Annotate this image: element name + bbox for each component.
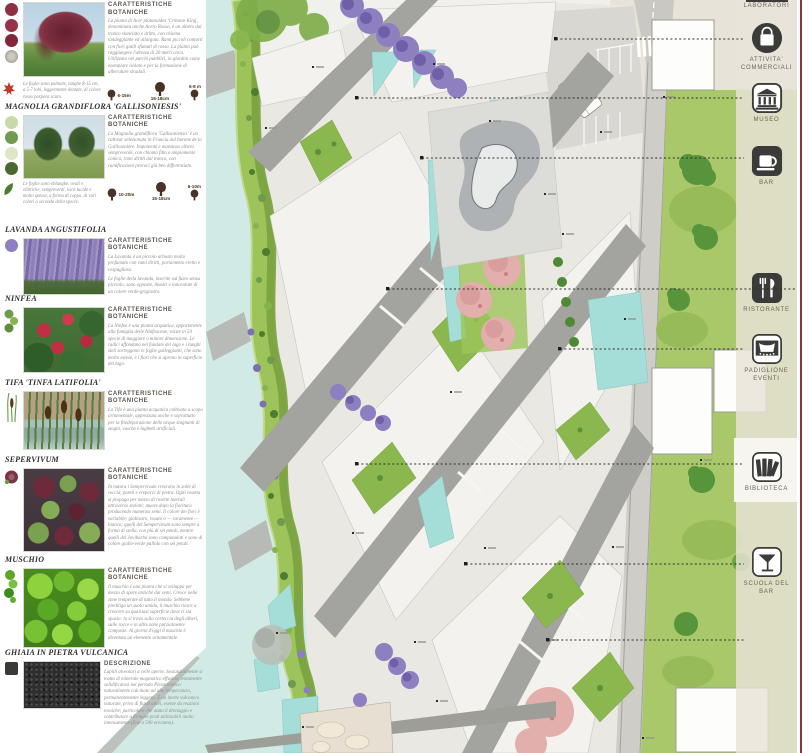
plant-title: LAVANDA ANGUSTIFOLIA — [5, 226, 204, 235]
facility-label: BIBLIOTECA — [745, 485, 788, 493]
facility-label: SCUOLA DEL BAR — [739, 580, 795, 596]
plant-section-sempervivum: SEPERVIVUM CARATTERISTICHE BOTANICHE In … — [3, 456, 204, 552]
sempervivum-photo — [23, 468, 105, 552]
facility-scuola-del-bar: SCUOLA DEL BAR — [736, 546, 797, 596]
tree-size-icon: 15-18cm — [151, 82, 169, 101]
botanical-text: La Tifa è una pianta acquatica coltivata… — [108, 408, 203, 434]
facility-laboratori: LABORATORI — [736, 0, 797, 7]
magnolia-swatches — [3, 115, 20, 179]
red-maple-leaf-icon — [3, 82, 20, 95]
plant-section-lavanda: LAVANDA ANGUSTIFOLIA CARATTERISTICHE BOT… — [3, 226, 204, 299]
coffee-cup-icon — [751, 145, 783, 177]
tree-size-icon: 10-20m — [107, 188, 134, 201]
plant-legend-panel: CARATTERISTICHE BOTANICHE La pianta di A… — [0, 0, 206, 753]
moss-icon — [3, 568, 20, 648]
stage-curtain-icon — [751, 333, 783, 365]
botanical-text-2: Le foglie della lavanda, inserite sul fu… — [108, 277, 203, 296]
botanical-text: In natura i Sempervivum crescono in zoll… — [108, 485, 203, 549]
plant-section-tifa: TIFA 'TINFA LATIFOLIA' CARATTERISTICHE B… — [3, 379, 204, 450]
cocktail-glass-icon — [751, 546, 783, 578]
tree-size-icon: 15-18cm — [152, 182, 170, 201]
facility-padiglione-eventi: PADIGLIONE EVENTI — [736, 333, 797, 383]
botanical-text: La pianta di Acer platanoides 'Crimson K… — [108, 19, 203, 76]
facility-museo: MUSEO — [736, 82, 797, 124]
botanical-text: La Lavanda è un piccolo arbusto molto pr… — [108, 255, 203, 274]
gravel-swatch — [3, 661, 20, 731]
plant-title: TIFA 'TINFA LATIFOLIA' — [5, 379, 204, 388]
lavanda-photo — [23, 238, 105, 295]
books-icon — [751, 451, 783, 483]
cattail-icon — [3, 391, 20, 450]
muschio-photo — [23, 568, 105, 648]
facility-strip: LABORATORI ATTIVITA' COMMERCIALI MUSEO B… — [736, 0, 797, 753]
plant-section-ninfea: NINFEA CARATTERISTICHE BOTANICHE La Ninf… — [3, 295, 204, 373]
plant-section-magnolia: MAGNOLIA GRANDIFLORA 'GALLISONIESIS' CAR… — [3, 103, 204, 206]
plant-title: NINFEA — [5, 295, 204, 304]
facility-attivita-commerciali: ATTIVITA' COMMERCIALI — [736, 22, 797, 72]
masterplan-board: CARATTERISTICHE BOTANICHE La pianta di A… — [0, 0, 810, 753]
facility-bar: BAR — [736, 145, 797, 187]
description-text: Lapilli alveolari a celle aperte. Sostan… — [104, 670, 203, 727]
tree-size-icon: 6-8 m — [189, 84, 201, 101]
botanical-heading: CARATTERISTICHE BOTANICHE — [108, 307, 203, 322]
rosette-icon — [3, 468, 20, 552]
tifa-photo — [23, 391, 105, 450]
facility-label: LABORATORI — [743, 2, 789, 7]
tree-size-pictograms: 6-15m 15-18cm 6-8 m — [104, 82, 204, 101]
red-border-line — [800, 0, 802, 753]
shopping-bag-icon — [751, 22, 783, 54]
lavanda-swatch — [3, 238, 20, 299]
leaf-caption: Le foglie sono oblunghe, ovali e ellitti… — [23, 182, 101, 206]
facility-label: PADIGLIONE EVENTI — [739, 367, 795, 383]
plant-title: MUSCHIO — [5, 556, 204, 565]
botanical-text: La Magnolia grandiflora 'Gallisoniensis'… — [108, 132, 203, 170]
museum-icon — [751, 82, 783, 114]
tree-size-icon: 6-10m — [188, 184, 201, 201]
botanical-text: Il muschio è una pianta che si sviluppa … — [108, 585, 203, 642]
botanical-heading: CARATTERISTICHE BOTANICHE — [108, 238, 203, 253]
botanical-text: La Ninfea è una pianta acquatica, appart… — [108, 324, 203, 369]
lily-pad-icon — [3, 307, 20, 373]
botanical-heading: CARATTERISTICHE BOTANICHE — [108, 568, 203, 583]
acer-swatches — [3, 2, 20, 79]
plant-title: SEPERVIVUM — [5, 456, 204, 465]
magnolia-photo — [23, 115, 105, 179]
plant-title: MAGNOLIA GRANDIFLORA 'GALLISONIESIS' — [5, 103, 204, 112]
ninfea-photo — [23, 307, 105, 373]
facility-label: MUSEO — [753, 116, 779, 124]
botanical-heading: CARATTERISTICHE BOTANICHE — [108, 468, 203, 483]
facility-ristorante: RISTORANTE — [736, 272, 797, 314]
facility-label: BAR — [759, 179, 774, 187]
leaf-caption: Le foglie sono palmate, lunghe 8-15 cm, … — [23, 82, 101, 100]
facility-biblioteca: BIBLIOTECA — [736, 451, 797, 493]
plant-section-muschio: MUSCHIO CARATTERISTICHE BOTANICHE Il mus… — [3, 556, 204, 648]
botanical-heading: CARATTERISTICHE BOTANICHE — [108, 2, 203, 17]
ghiaia-photo — [23, 661, 101, 709]
skatepark — [428, 92, 562, 268]
botanical-heading: CARATTERISTICHE BOTANICHE — [108, 391, 203, 406]
tree-size-pictograms: 10-20m 15-18cm 6-10m — [104, 182, 204, 201]
facility-label: ATTIVITA' COMMERCIALI — [739, 56, 795, 72]
botanical-heading: CARATTERISTICHE BOTANICHE — [108, 115, 203, 130]
plant-section-acer: CARATTERISTICHE BOTANICHE La pianta di A… — [3, 2, 204, 101]
fork-knife-icon — [751, 272, 783, 304]
acer-photo — [23, 2, 105, 77]
facility-label: RISTORANTE — [743, 306, 790, 314]
plant-title: GHIAIA IN PIETRA VULCANICA — [5, 649, 204, 658]
green-leaf-icon — [3, 182, 20, 196]
tree-size-icon: 6-15m — [107, 89, 131, 101]
description-heading: DESCRIZIONE — [104, 661, 203, 669]
plant-section-ghiaia: GHIAIA IN PIETRA VULCANICA DESCRIZIONE L… — [3, 649, 204, 731]
